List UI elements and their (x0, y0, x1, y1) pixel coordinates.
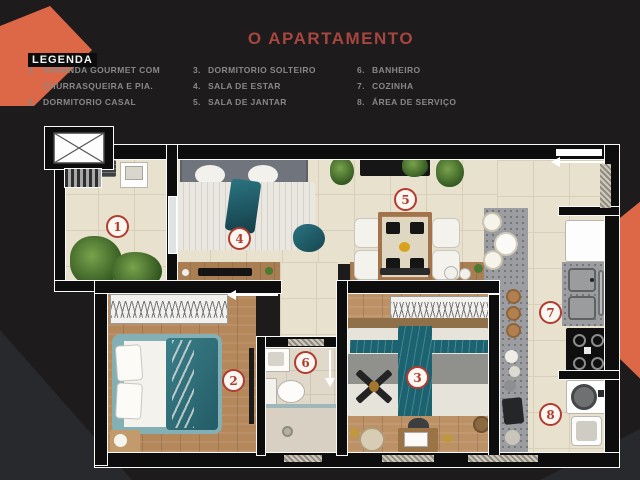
legend-item-label: BANHEIRO (372, 62, 497, 78)
buffet-plant (474, 264, 483, 273)
dining-plant-right (436, 157, 464, 187)
bathroom-threshold (288, 339, 324, 346)
burner (573, 334, 586, 347)
tv (198, 268, 252, 276)
decor-gold (443, 434, 452, 443)
legend-item-number: 7. (357, 78, 372, 94)
island-stool (496, 234, 516, 254)
table-centerpiece (399, 242, 410, 252)
bottom-wall-texture (382, 455, 434, 462)
gray-throw (172, 340, 194, 428)
hallway-floor (280, 262, 338, 340)
room-marker-banheiro: 6 (294, 351, 317, 374)
legend-item-8: 8. ÁREA DE SERVIÇO (357, 94, 497, 110)
room-marker-cozinha: 7 (539, 301, 562, 324)
room-marker-dormitorio-solteiro: 3 (406, 366, 429, 389)
tank-basin (576, 421, 597, 441)
placemat (410, 222, 424, 234)
console-plant (265, 267, 273, 275)
room-marker-sala-de-estar: 4 (228, 227, 251, 250)
legend-item-number: 8. (357, 94, 372, 110)
room-marker-sala-de-jantar: 5 (394, 188, 417, 211)
buffet-plate (444, 266, 458, 280)
legend-item-2: 2. DORMITORIO CASAL (28, 94, 161, 110)
bathroom-door-arrow-icon (325, 378, 335, 387)
clothes-rack-knot (369, 381, 379, 392)
legend-item-6: 6. BANHEIRO (357, 62, 497, 78)
burner (591, 357, 604, 370)
legend-item-7: 7. COZINHA (357, 78, 497, 94)
kitchen-sink (568, 296, 596, 320)
legend-item-3: 3. DORMITORIO SOLTEIRO (193, 62, 333, 78)
room-marker-dormitorio-casal: 2 (222, 369, 245, 392)
pillow (115, 344, 143, 382)
burner (591, 334, 604, 347)
bathroom-door-arrow-shaft (329, 350, 331, 378)
legend-item-label: SALA DE JANTAR (208, 94, 333, 110)
shower-floor (262, 408, 338, 452)
legend-item-1: 1. VARANDA GOURMET COM CHURRASQUEIRA E P… (28, 62, 161, 94)
page-title: O APARTAMENTO (248, 29, 414, 49)
balcony-sink-basin (125, 166, 143, 180)
bottom-wall-texture (284, 455, 322, 462)
wood-stool (506, 289, 521, 304)
legend-item-number: 2. (28, 94, 43, 110)
legend-item-number: 1. (28, 62, 43, 94)
island-stool (485, 252, 501, 268)
legend-item-label: SALA DE ESTAR (208, 78, 333, 94)
legend-column-3: 6. BANHEIRO 7. COZINHA 8. ÁREA DE SERVIÇ… (357, 62, 497, 110)
wall-bathroom-solteiro (336, 280, 348, 456)
elevator-icon (53, 132, 105, 164)
console-decor (182, 269, 189, 276)
balcony-sliding-door (168, 196, 177, 254)
wood-stool (506, 306, 521, 321)
wall-solteiro-kitchen (488, 294, 500, 456)
counter-plate (509, 366, 520, 377)
legend-item-number: 6. (357, 62, 372, 78)
counter-dark-decor (502, 397, 525, 425)
dining-plant-left (330, 157, 354, 185)
toilet-bowl (277, 380, 305, 403)
casal-door-arrow-shaft (236, 294, 278, 296)
stairs (64, 168, 102, 188)
entry-door-arrow-shaft (560, 161, 604, 163)
tv-casal (249, 348, 254, 424)
legend-item-label: DORMITORIO CASAL (43, 94, 161, 110)
round-table (359, 427, 385, 452)
faucet (590, 278, 594, 282)
wall-service-stub (558, 370, 620, 380)
legend-item-label: DORMITORIO SOLTEIRO (208, 62, 333, 78)
counter-plate (505, 430, 520, 445)
decor-gold (350, 428, 359, 437)
pillow (115, 382, 143, 419)
entry-threshold (600, 164, 611, 208)
legend-column-1: 1. VARANDA GOURMET COM CHURRASQUEIRA E P… (28, 62, 161, 110)
stove-center (584, 347, 591, 354)
washer-lid (571, 384, 597, 410)
counter-pot (504, 380, 516, 392)
legend-item-label: COZINHA (372, 78, 497, 94)
wall-casal-bathroom (256, 336, 266, 456)
burner (573, 357, 586, 370)
island-stool (484, 214, 500, 230)
bed-gray-band (432, 354, 490, 384)
legend-column-2: 3. DORMITORIO SOLTEIRO 4. SALA DE ESTAR … (193, 62, 333, 110)
sink-basin (268, 352, 284, 366)
laptop (404, 432, 428, 447)
wardrobe-casal (110, 294, 228, 324)
apartment-brochure-page: O APARTAMENTO LEGENDA 1. VARANDA GOURMET… (0, 0, 640, 480)
shower-drain (282, 426, 293, 437)
dining-chair (432, 218, 460, 248)
room-marker-varanda: 1 (106, 215, 129, 238)
wall-top (56, 144, 620, 160)
placemat (386, 222, 400, 234)
buffet-decor (380, 268, 430, 275)
wall-bedroom-casal-top (94, 280, 282, 294)
legend-item-number: 5. (193, 94, 208, 110)
legend-item-label: ÁREA DE SERVIÇO (372, 94, 497, 110)
entry-door-leaf (556, 149, 602, 156)
legend-item-5: 5. SALA DE JANTAR (193, 94, 333, 110)
refrigerator (565, 220, 607, 262)
legend-item-number: 3. (193, 62, 208, 78)
room-marker-area-de-servico: 8 (539, 403, 562, 426)
legend-item-label: VARANDA GOURMET COM CHURRASQUEIRA E PIA. (43, 62, 161, 94)
wall-left-lower (94, 282, 108, 466)
legend-item-4: 4. SALA DE ESTAR (193, 78, 333, 94)
legend-item-number: 4. (193, 78, 208, 94)
teal-pouf (293, 224, 325, 252)
bottom-wall-texture (468, 455, 538, 462)
entry-door-arrow-icon (551, 157, 560, 167)
counter-plate (505, 350, 518, 363)
wall-bottom (94, 452, 620, 468)
lamp (114, 434, 127, 447)
casal-door-arrow-icon (227, 290, 236, 300)
buffet-plate (459, 268, 471, 280)
bed-gray-band (348, 354, 398, 384)
wood-stool (506, 323, 521, 338)
wall-bedroom-solteiro-top (336, 280, 500, 294)
